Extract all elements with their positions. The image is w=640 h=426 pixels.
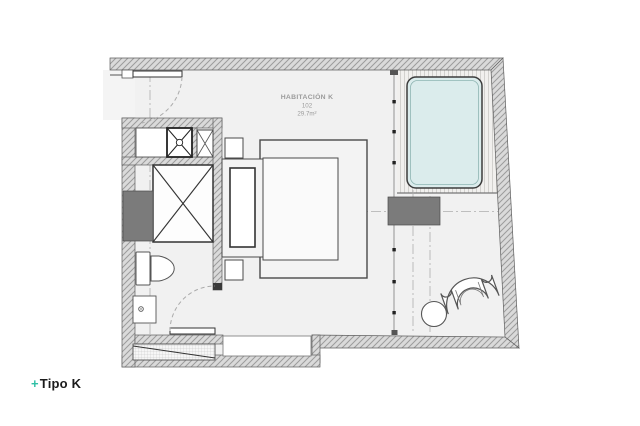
- bathtub: [407, 77, 482, 188]
- bottom-right-wall: [312, 335, 519, 348]
- room-name: HABITACIÓN K: [281, 92, 334, 101]
- floorplan-canvas: HABITACIÓN K 102 29.7m² +Tipo K: [0, 0, 640, 426]
- top-wall: [110, 58, 503, 70]
- left-wall: [122, 118, 135, 367]
- mattress: [263, 158, 338, 260]
- floorplan-drawing: HABITACIÓN K 102 29.7m²: [0, 0, 640, 426]
- bathroom-door-leaf: [170, 328, 215, 334]
- nightstand-top: [225, 138, 243, 158]
- room-area: 29.7m²: [297, 111, 316, 118]
- type-label-text: Tipo K: [40, 376, 81, 391]
- closet-bottom-wall: [122, 157, 222, 165]
- dark-block-right: [388, 197, 440, 225]
- shower-xbox: [153, 165, 213, 242]
- sloped-shaft: [133, 344, 215, 360]
- plus-mark: +: [31, 376, 39, 391]
- side-table: [422, 302, 447, 327]
- closet-row: [136, 128, 213, 157]
- type-label: +Tipo K: [31, 376, 81, 391]
- small-shaft-box: [197, 130, 213, 157]
- door-jamb-cap: [213, 283, 222, 290]
- nightstand-bottom: [225, 260, 243, 280]
- closet-top-wall: [122, 118, 222, 128]
- vent-shaft-box: [167, 128, 192, 157]
- basin-square: [133, 296, 156, 323]
- entry-door-leaf: [133, 71, 182, 77]
- dark-block-left: [123, 191, 153, 241]
- bottom-niche: [223, 336, 311, 356]
- bathroom-partition-wall: [213, 118, 222, 290]
- room-number: 102: [302, 103, 313, 110]
- toilet-tank: [136, 252, 150, 285]
- closet-box: [136, 128, 167, 157]
- bathroom-bottom-wall: [135, 335, 223, 344]
- headboard-panel: [230, 168, 255, 247]
- entry-door-frame: [122, 70, 133, 78]
